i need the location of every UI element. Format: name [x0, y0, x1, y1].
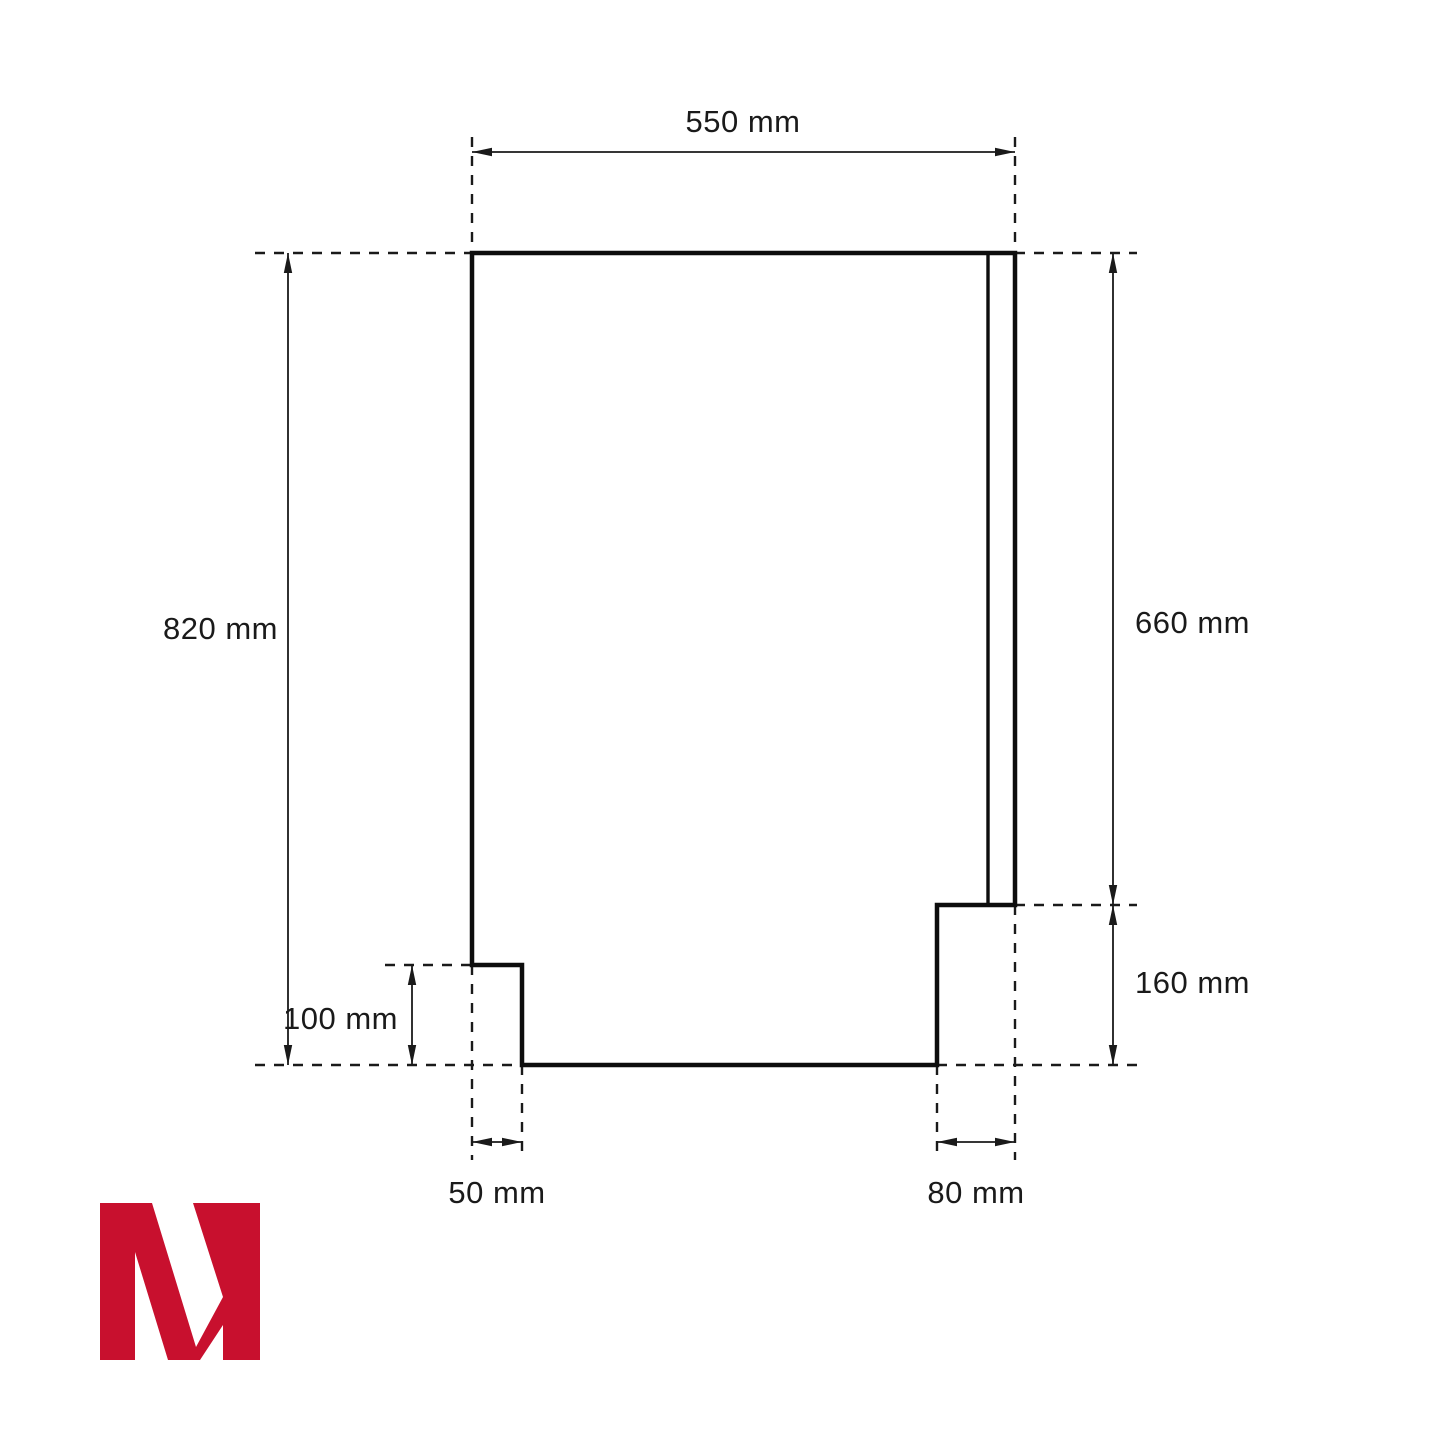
label-left-notch-width: 50 mm — [448, 1175, 545, 1210]
label-right-step-height: 160 mm — [1135, 965, 1250, 1000]
dimension-diagram-svg: 550 mm 820 mm 660 mm 160 mm 100 mm 50 mm… — [0, 0, 1445, 1445]
label-right-height: 660 mm — [1135, 605, 1250, 640]
technical-drawing-page: 550 mm 820 mm 660 mm 160 mm 100 mm 50 mm… — [0, 0, 1445, 1445]
label-left-notch-height: 100 mm — [283, 1001, 398, 1036]
label-top-width: 550 mm — [686, 104, 801, 139]
label-right-step-width: 80 mm — [927, 1175, 1024, 1210]
panel-outline — [472, 253, 1015, 1065]
brand-logo-m-icon — [100, 1203, 260, 1360]
dimension-labels: 550 mm 820 mm 660 mm 160 mm 100 mm 50 mm… — [163, 104, 1250, 1210]
label-left-height: 820 mm — [163, 611, 278, 646]
